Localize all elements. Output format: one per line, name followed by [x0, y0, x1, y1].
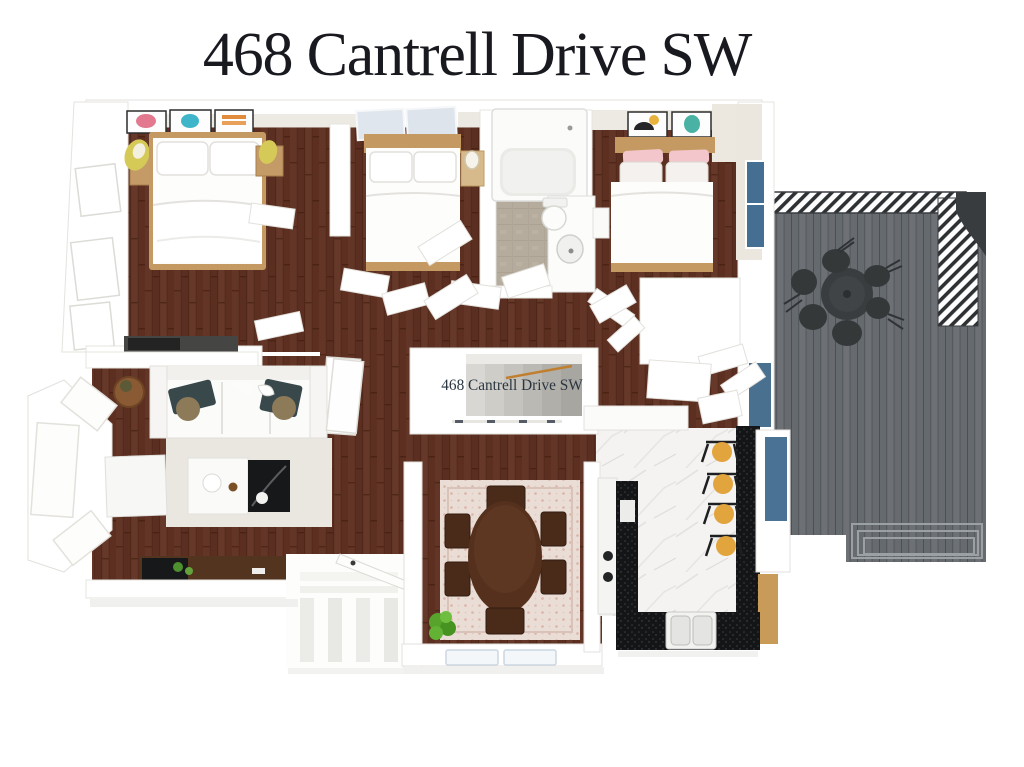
svg-text:468 Cantrell Drive SW: 468 Cantrell Drive SW — [441, 377, 583, 394]
svg-text:468 Cantrell Drive SW: 468 Cantrell Drive SW — [203, 21, 753, 89]
